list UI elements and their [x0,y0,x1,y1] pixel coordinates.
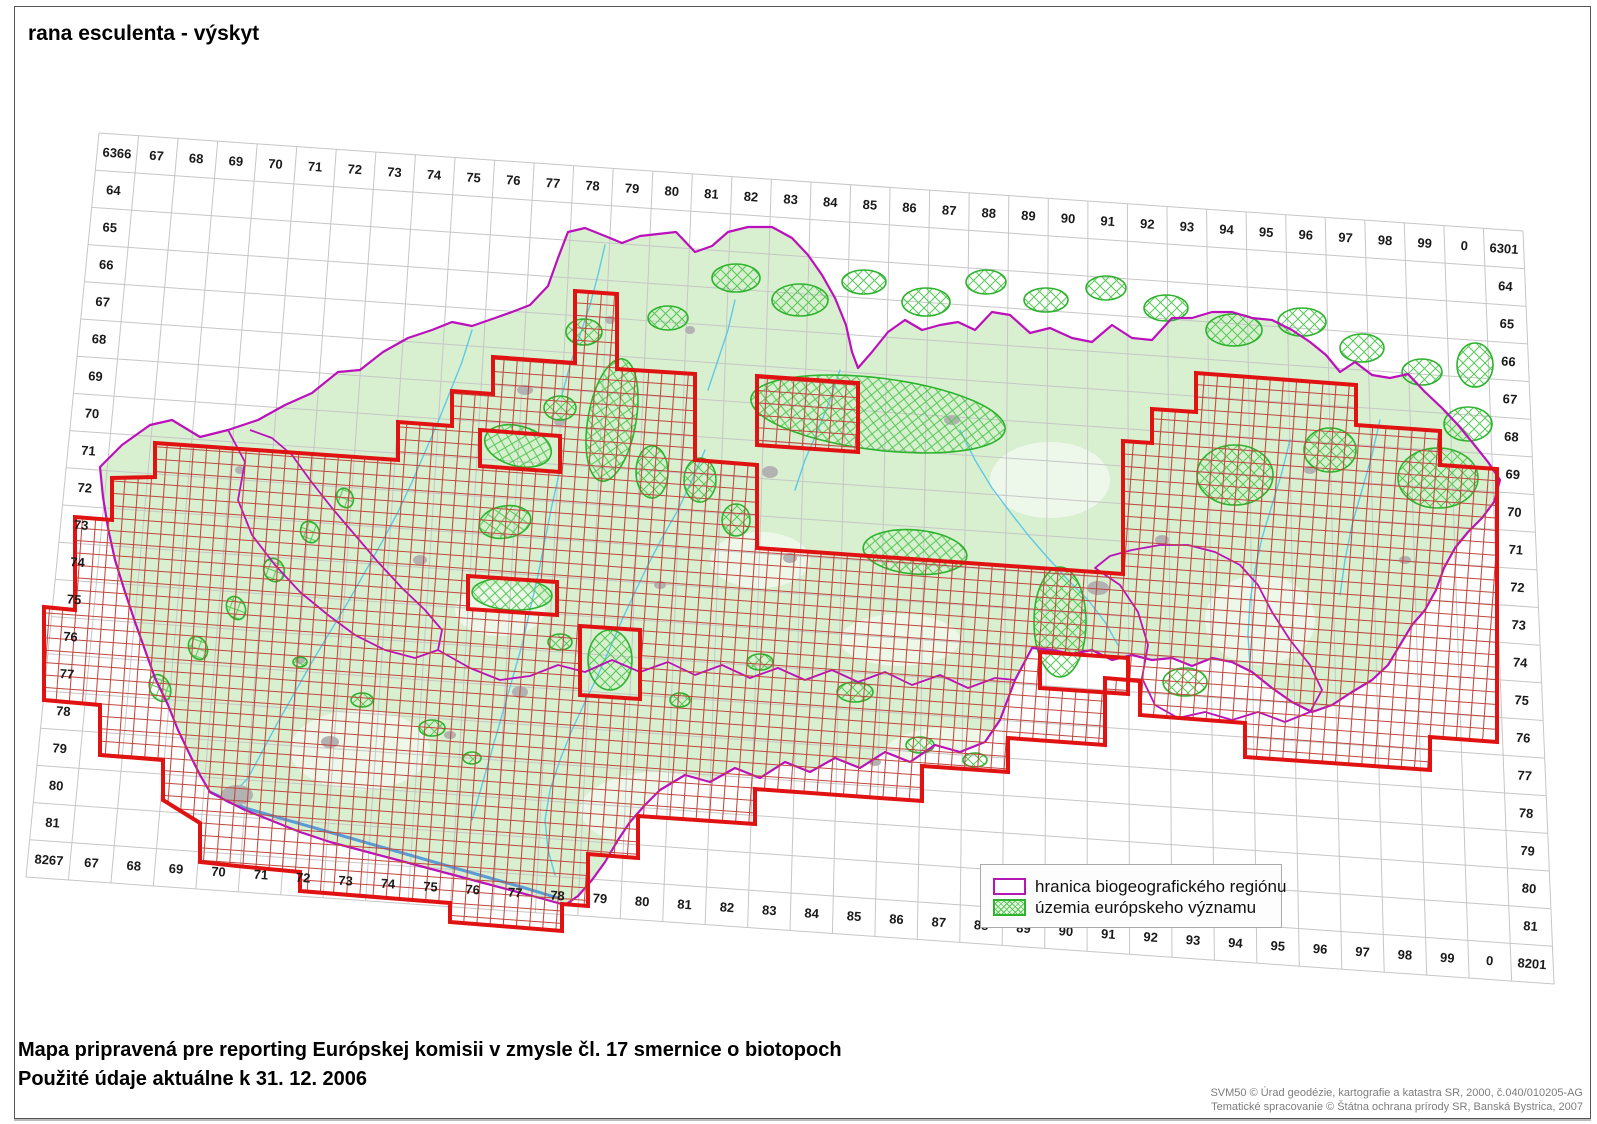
grid-row-label-left: 68 [91,331,107,347]
grid-corner-top-right: 6301 [1489,240,1519,257]
grid-col-label-bottom: 86 [889,911,905,927]
grid-col-label-bottom: 83 [762,902,778,918]
grid-row-label-right: 66 [1501,353,1517,369]
map-page: rana esculenta - výskyt [0,0,1597,1124]
grid-col-label-top: 84 [823,194,839,210]
grid-col-label-top: 82 [743,189,759,205]
grid-col-label-bottom: 80 [634,893,650,909]
grid-col-label-bottom: 72 [295,870,311,886]
grid-col-label-bottom: 70 [211,864,227,880]
grid-row-label-left: 64 [106,182,122,198]
grid-row-label-left: 65 [102,219,118,235]
grid-row-label-right: 65 [1499,316,1515,332]
grid-col-label-bottom: 98 [1397,947,1413,963]
grid-col-label-top: 98 [1377,232,1393,248]
grid-col-label-bottom: 75 [423,879,439,895]
grid-row-label-left: 70 [84,405,100,421]
grid-col-label-top: 72 [347,161,363,177]
grid-row-label-left: 77 [59,666,75,682]
grid-row-label-right: 67 [1502,391,1518,407]
grid-line [99,133,1523,231]
grid-col-label-top: 99 [1417,235,1433,251]
grid-row-label-left: 69 [88,368,104,384]
grid-col-label-bottom: 74 [380,876,396,892]
grid-row-label-left: 81 [45,815,61,831]
grid-row-label-right: 81 [1523,918,1539,934]
grid-col-label-bottom: 99 [1440,950,1456,966]
grid-row-label-left: 80 [48,778,64,794]
grid-col-label-top: 70 [268,156,284,172]
grid-col-label-top: 88 [981,205,997,221]
grid-col-label-top: 78 [585,178,601,194]
grid-row-label-right: 80 [1521,880,1537,896]
grid-col-label-top: 71 [307,159,323,175]
grid-corner-bottom-right: 8201 [1517,955,1547,972]
grid-row-label-right: 64 [1498,278,1514,294]
grid-col-label-top: 0 [1460,238,1468,253]
grid-col-label-bottom: 87 [931,914,947,930]
grid-row-label-right: 77 [1517,768,1533,784]
grid-col-label-bottom: 96 [1312,941,1328,957]
grid-col-label-bottom: 84 [804,905,820,921]
grid-col-label-bottom: 91 [1101,926,1117,942]
grid-col-label-top: 94 [1219,221,1235,237]
grid-col-label-bottom: 85 [846,908,862,924]
grid-col-label-top: 91 [1100,213,1116,229]
grid-col-label-bottom: 92 [1143,929,1159,945]
footer-line-2: Použité údaje aktuálne k 31. 12. 2006 [18,1065,842,1094]
grid-row-label-left: 74 [70,554,86,570]
grid-col-label-bottom: 94 [1228,935,1244,951]
grid-row-label-right: 79 [1520,843,1536,859]
purple-outline-swatch [993,878,1026,895]
grid-col-label-top: 67 [149,148,165,164]
grid-col-label-top: 87 [941,202,957,218]
grid-col-label-top: 92 [1140,216,1156,232]
grid-row-label-right: 76 [1515,730,1531,746]
green-crosshatch-swatch [993,899,1026,916]
grid-row-label-left: 71 [81,443,97,459]
grid-col-label-bottom: 97 [1355,944,1371,960]
grid-col-label-top: 77 [545,175,561,191]
footer-notes: Mapa pripravená pre reporting Európskej … [18,1036,842,1094]
legend-item-sci-areas: územia európskeho významu [993,897,1281,918]
occurrence-layer [44,291,1497,931]
map-canvas[interactable]: 6366630182678201676768686969707071717272… [0,0,1597,1124]
grid-col-label-top: 95 [1258,224,1274,240]
legend-item-biogeographic-boundary: hranica biogeografického regiónu [993,876,1281,897]
grid-row-label-right: 78 [1518,805,1534,821]
grid-col-label-top: 76 [506,172,522,188]
grid-col-label-bottom: 76 [465,882,481,898]
map-credits: SVM50 © Úrad geodézie, kartografie a kat… [1210,1086,1583,1114]
grid-row-label-left: 67 [95,294,111,310]
credits-line-2: Tematické spracovanie © Štátna ochrana p… [1210,1100,1583,1114]
map-legend: hranica biogeografického regiónu územia … [980,864,1282,928]
grid-col-label-top: 75 [466,170,482,186]
grid-row-label-left: 72 [77,480,93,496]
grid-col-label-top: 97 [1338,230,1354,246]
footer-line-1: Mapa pripravená pre reporting Európskej … [18,1036,842,1065]
grid-col-label-bottom: 95 [1270,938,1286,954]
grid-col-label-top: 81 [704,186,720,202]
grid-col-label-bottom: 73 [338,873,354,889]
grid-row-label-left: 73 [73,517,89,533]
grid-col-label-bottom: 71 [253,867,269,883]
grid-col-label-bottom: 79 [592,890,608,906]
grid-col-label-top: 83 [783,191,799,207]
grid-col-label-top: 68 [188,150,204,166]
grid-col-label-bottom: 0 [1486,953,1494,968]
grid-col-label-top: 89 [1021,208,1037,224]
legend-label: hranica biogeografického regiónu [1035,877,1286,897]
grid-row-label-right: 74 [1512,655,1528,671]
grid-row-label-right: 75 [1514,692,1530,708]
grid-col-label-top: 79 [624,180,640,196]
grid-col-label-top: 80 [664,183,680,199]
grid-col-label-top: 74 [426,167,442,183]
grid-row-label-right: 69 [1505,466,1521,482]
grid-row-label-right: 68 [1504,429,1520,445]
grid-row-label-right: 70 [1507,504,1523,520]
grid-row-label-left: 78 [56,703,72,719]
grid-col-label-top: 93 [1179,219,1195,235]
grid-col-label-top: 69 [228,153,244,169]
grid-col-label-top: 73 [387,164,403,180]
grid-col-label-top: 86 [902,200,918,216]
grid-col-label-bottom: 78 [550,888,566,904]
grid-corner-bottom-left: 8267 [34,851,64,868]
legend-label: územia európskeho významu [1035,898,1256,918]
grid-row-label-left: 66 [99,257,115,273]
grid-col-label-bottom: 82 [719,899,735,915]
grid-line [95,170,1524,268]
grid-row-label-left: 75 [66,591,82,607]
grid-col-label-bottom: 93 [1185,932,1201,948]
grid-col-label-bottom: 81 [677,896,693,912]
occurrence-island-region [757,376,858,452]
grid-row-label-left: 76 [63,629,79,645]
grid-col-label-top: 90 [1060,210,1076,226]
grid-col-label-top: 96 [1298,227,1314,243]
grid-col-label-top: 85 [862,197,878,213]
grid-corner-top-left: 6366 [102,144,132,161]
grid-row-label-left: 79 [52,740,68,756]
grid-row-label-right: 73 [1511,617,1527,633]
grid-col-label-bottom: 69 [168,861,184,877]
grid-col-label-bottom: 67 [84,855,100,871]
grid-row-label-right: 71 [1508,542,1524,558]
grid-col-label-bottom: 68 [126,858,142,874]
grid-row-label-right: 72 [1510,579,1526,595]
grid-col-label-bottom: 77 [507,885,523,901]
credits-line-1: SVM50 © Úrad geodézie, kartografie a kat… [1210,1086,1583,1100]
